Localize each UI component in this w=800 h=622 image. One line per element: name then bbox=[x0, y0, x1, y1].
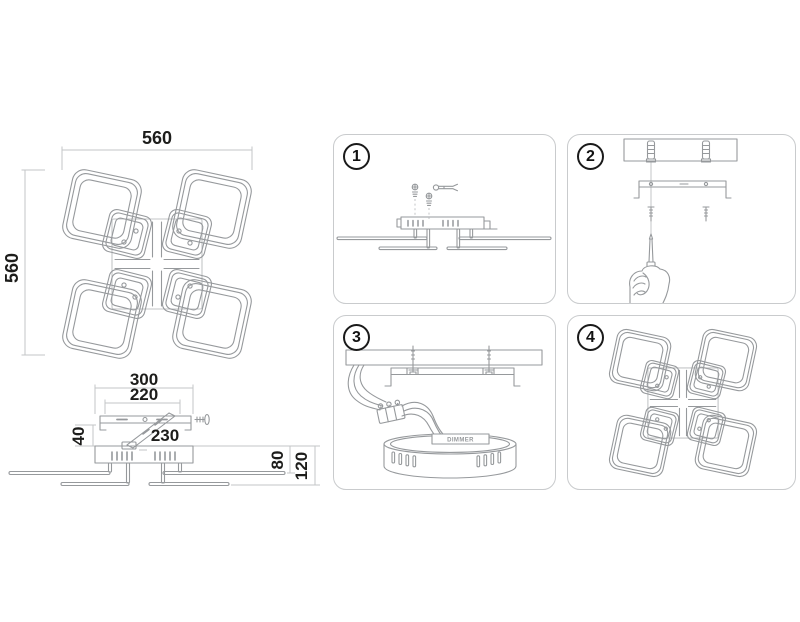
lamp-top-view bbox=[60, 167, 253, 360]
lamp-top-view-final bbox=[608, 328, 759, 479]
hand-icon bbox=[630, 266, 670, 304]
mounting-bracket-step2 bbox=[634, 181, 731, 198]
step-3-number: 3 bbox=[352, 329, 361, 347]
dimmer-driver-box: DIMMER bbox=[432, 434, 489, 444]
supply-wires bbox=[348, 365, 386, 410]
terminal-block bbox=[376, 399, 405, 423]
step-3-number-badge: 3 bbox=[343, 324, 370, 351]
mounting-screws bbox=[648, 207, 709, 221]
step-panel-2: 2 bbox=[567, 134, 796, 304]
lamp-base-step1 bbox=[337, 217, 551, 250]
instruction-sheet: 560 560 bbox=[0, 0, 800, 622]
step-panel-1: 1 bbox=[333, 134, 556, 304]
step-4-number-badge: 4 bbox=[577, 324, 604, 351]
ceiling-with-anchors bbox=[624, 139, 737, 162]
top-view-height-label: 560 bbox=[2, 253, 22, 283]
step-2-number-badge: 2 bbox=[577, 143, 604, 170]
step-panel-3: 3 bbox=[333, 315, 556, 490]
dimmer-driver-label: DIMMER bbox=[447, 438, 474, 444]
side-view-arm-height-label: 80 bbox=[268, 451, 287, 470]
screw-icon bbox=[412, 184, 432, 205]
step-4-number: 4 bbox=[586, 329, 595, 347]
top-view-drawing: 560 560 bbox=[5, 118, 315, 380]
lamp-base-side bbox=[9, 446, 285, 486]
step-2-number: 2 bbox=[586, 148, 595, 166]
side-view-inner-width-label: 220 bbox=[130, 385, 158, 404]
step-1-number-badge: 1 bbox=[343, 143, 370, 170]
top-view-width-label: 560 bbox=[142, 128, 172, 148]
side-view-canopy-height-label: 40 bbox=[69, 427, 88, 446]
screw-leader-lines bbox=[415, 199, 429, 219]
wrench-icon bbox=[433, 184, 457, 190]
step-1-number: 1 bbox=[352, 148, 361, 166]
side-view-drawing: 300 220 230 40 80 120 bbox=[5, 372, 327, 510]
side-view-total-height-label: 120 bbox=[292, 452, 311, 480]
mounting-bracket-step3 bbox=[385, 368, 520, 386]
ceiling-step3 bbox=[346, 350, 542, 365]
side-view-bar-length-label: 230 bbox=[151, 426, 179, 445]
step-panel-4: 4 bbox=[567, 315, 796, 490]
